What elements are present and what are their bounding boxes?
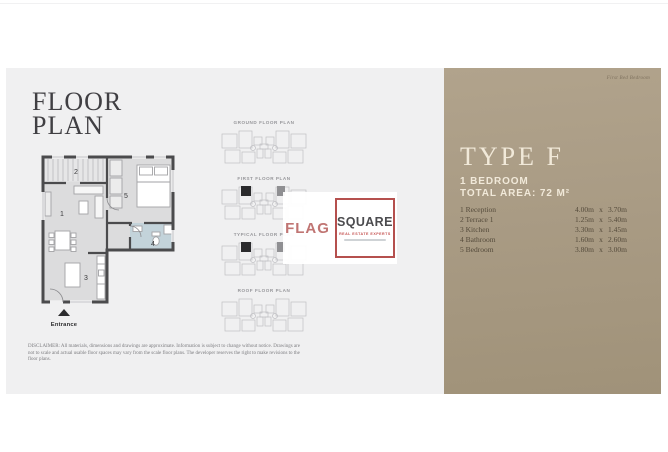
logo-square-box: SQUARE REAL ESTATE EXPERTS [335, 198, 395, 258]
dimension-separator: x [594, 235, 608, 244]
thumbnail-label: ROOF FLOOR PLAN [217, 288, 311, 293]
disclaimer-text: DISCLAIMER: All materials, dimensions an… [28, 344, 304, 364]
thumbnail-ground-floor: GROUND FLOOR PLAN [217, 120, 311, 176]
room-number-5: 5 [124, 193, 128, 200]
total-area-line: TOTAL AREA: 72 M² [460, 188, 570, 199]
room-length: 2.60m [608, 235, 644, 244]
logo-tagline: REAL ESTATE EXPERTS [339, 232, 391, 236]
room-name: 5 Bedroom [460, 245, 558, 254]
cluster-plan-icon [220, 295, 308, 339]
page-title: FLOOR PLAN [32, 90, 122, 138]
flag-square-logo: FLAG SQUARE REAL ESTATE EXPERTS [283, 192, 397, 264]
page-title-line2: PLAN [32, 114, 122, 138]
top-divider-line [0, 3, 668, 4]
unit-info-panel: First Bed Bedroom TYPE F 1 BEDROOM TOTAL… [444, 68, 661, 394]
room-number-1: 1 [60, 211, 64, 218]
room-number-2: 2 [74, 169, 78, 176]
apartment-floor-plan-drawing: 1 2 3 4 5 Entrance [36, 152, 181, 337]
logo-square-text: SQUARE [337, 215, 393, 229]
room-length: 1.45m [608, 225, 644, 234]
thumbnail-label: FIRST FLOOR PLAN [217, 176, 311, 181]
floor-plan-sheet: FLOOR PLAN [6, 68, 444, 394]
logo-subline-bar [344, 239, 386, 241]
table-row: 3 Kitchen 3.30m x 1.45m [460, 224, 644, 234]
room-width: 3.30m [558, 225, 594, 234]
brochure-page: FLOOR PLAN [0, 0, 668, 452]
thumbnail-label: GROUND FLOOR PLAN [217, 120, 311, 125]
room-width: 1.60m [558, 235, 594, 244]
room-name: 3 Kitchen [460, 225, 558, 234]
dimension-separator: x [594, 245, 608, 254]
room-length: 3.70m [608, 205, 644, 214]
entrance-label: Entrance [51, 322, 78, 328]
room-number-4: 4 [151, 241, 155, 248]
table-row: 2 Terrace 1 1.25m x 5.40m [460, 214, 644, 224]
entrance-arrow-icon [58, 309, 70, 316]
cluster-plan-icon [220, 127, 308, 171]
room-name: 4 Bathroom [460, 235, 558, 244]
room-width: 4.00m [558, 205, 594, 214]
room-dimensions-table: 1 Reception 4.00m x 3.70m 2 Terrace 1 1.… [460, 204, 644, 254]
content-board: FLOOR PLAN [6, 68, 661, 394]
thumbnail-roof-floor: ROOF FLOOR PLAN [217, 288, 311, 344]
dimension-separator: x [594, 225, 608, 234]
dimension-separator: x [594, 205, 608, 214]
room-length: 3.00m [608, 245, 644, 254]
table-row: 5 Bedroom 3.80m x 3.00m [460, 244, 644, 254]
table-row: 1 Reception 4.00m x 3.70m [460, 204, 644, 214]
highlighted-unit-dark [241, 242, 251, 252]
unit-type-title: TYPE F [460, 142, 564, 172]
logo-flag-text: FLAG [285, 220, 330, 237]
bedroom-count-line: 1 BEDROOM [460, 176, 529, 187]
room-name: 1 Reception [460, 205, 558, 214]
dimension-separator: x [594, 215, 608, 224]
panel-watermark-text: First Bed Bedroom [607, 76, 650, 81]
room-width: 3.80m [558, 245, 594, 254]
room-name: 2 Terrace 1 [460, 215, 558, 224]
table-row: 4 Bathroom 1.60m x 2.60m [460, 234, 644, 244]
highlighted-unit-dark [241, 186, 251, 196]
room-number-3: 3 [84, 275, 88, 282]
room-width: 1.25m [558, 215, 594, 224]
room-length: 5.40m [608, 215, 644, 224]
